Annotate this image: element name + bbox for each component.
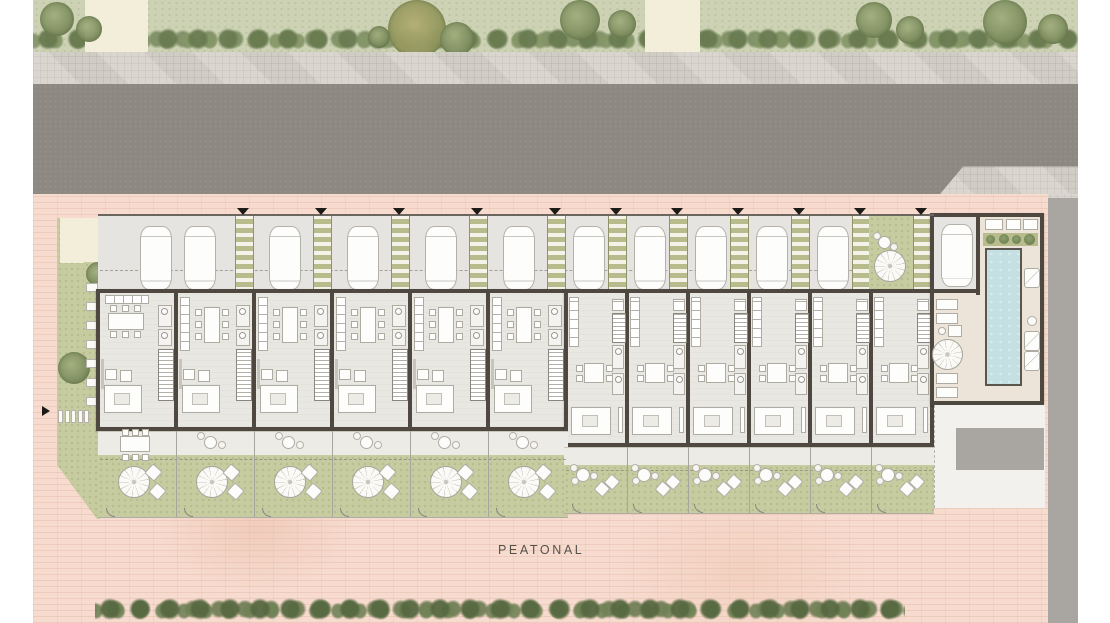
stairs — [470, 349, 486, 401]
chair-icon — [637, 375, 644, 382]
entry-walkway — [235, 216, 254, 291]
stairs — [734, 313, 748, 343]
closet — [673, 299, 685, 311]
car-icon — [425, 226, 457, 290]
chair-icon — [273, 333, 280, 340]
garden-dash-line-a — [100, 459, 566, 460]
entry-marker-icon — [732, 208, 744, 215]
tree-icon — [856, 2, 892, 38]
kitchen — [180, 297, 190, 351]
skylight — [1023, 219, 1038, 230]
chair-icon — [452, 441, 460, 449]
bathroom — [158, 305, 172, 327]
sink-icon — [239, 308, 246, 315]
entry-marker-icon — [610, 208, 622, 215]
townhouse-unit-a-5 — [412, 293, 486, 427]
sofa — [632, 407, 672, 435]
townhouse-unit-a-6 — [490, 293, 564, 427]
stepping-stone-icon — [58, 410, 63, 423]
chair-icon — [195, 333, 202, 340]
chair-icon — [570, 464, 578, 472]
chair-icon — [876, 477, 884, 485]
chair-icon — [534, 309, 541, 316]
chair-icon — [693, 477, 701, 485]
chair-icon — [507, 321, 514, 328]
side-table-icon — [938, 327, 946, 335]
chair-icon — [509, 432, 517, 440]
sofa-cushion — [426, 393, 442, 406]
chair-icon — [606, 365, 613, 372]
townhouse-unit-a-3 — [256, 293, 330, 427]
bistro-table-icon — [282, 436, 295, 449]
chair-icon — [753, 464, 761, 472]
sofa — [104, 385, 142, 413]
lounge-chair-icon — [948, 325, 962, 337]
toilet-icon — [798, 376, 805, 383]
stairs — [314, 349, 330, 401]
chair-icon — [374, 441, 382, 449]
car-icon — [184, 226, 216, 290]
toilet-icon — [317, 332, 324, 339]
car-icon — [817, 226, 849, 290]
sink-icon — [615, 348, 622, 355]
kitchen — [569, 297, 579, 347]
entry-walkway — [547, 216, 566, 291]
townhouse-unit-a-2 — [178, 293, 252, 427]
chair-icon — [698, 375, 705, 382]
toilet-icon — [551, 332, 558, 339]
car-icon — [634, 226, 666, 290]
toilet-icon — [239, 332, 246, 339]
chair-icon — [456, 333, 463, 340]
garden-fence — [410, 431, 411, 517]
bathroom — [158, 329, 172, 346]
tree-icon — [896, 16, 924, 44]
closet — [795, 299, 807, 311]
armchair-icon — [339, 369, 351, 380]
chair-icon — [637, 365, 644, 372]
sofa-cushion — [765, 415, 781, 428]
chair-icon — [222, 309, 229, 316]
sink-icon — [920, 348, 927, 355]
chair-icon — [789, 365, 796, 372]
bench-icon — [740, 407, 745, 433]
sun-lounger-icon — [1024, 268, 1040, 288]
kitchen — [258, 297, 268, 351]
entry-walkway — [791, 216, 810, 291]
closet — [856, 299, 868, 311]
garden-fence — [332, 431, 333, 517]
bathroom — [548, 329, 562, 346]
bathroom — [236, 329, 250, 346]
chair-icon — [273, 309, 280, 316]
dining-table — [438, 307, 454, 343]
chair-icon — [222, 321, 229, 328]
townhouse-unit-a-4 — [334, 293, 408, 427]
road — [33, 84, 1078, 194]
sink-icon — [317, 308, 324, 315]
townhouse-unit-b-2 — [629, 293, 686, 443]
shrub-icon — [1012, 235, 1021, 244]
dining-table — [828, 363, 848, 383]
chair-icon — [571, 477, 579, 485]
shrub-icon — [1024, 234, 1035, 245]
armchair-icon — [261, 369, 273, 380]
chair-icon — [911, 375, 918, 382]
chair-icon — [142, 454, 149, 461]
chair-icon — [712, 472, 720, 480]
site-plan: PEATONAL — [0, 0, 1110, 623]
sofa — [693, 407, 733, 435]
chair-icon — [353, 432, 361, 440]
coffee-table-icon — [276, 370, 288, 382]
chair-icon — [195, 309, 202, 316]
stairs — [856, 313, 870, 343]
garden-fence — [688, 447, 689, 513]
chair-icon — [850, 375, 857, 382]
south-hedge — [95, 594, 905, 623]
chair-icon — [667, 375, 674, 382]
chair-icon — [222, 333, 229, 340]
car-icon — [941, 224, 973, 287]
chair-icon — [850, 365, 857, 372]
bench-icon — [936, 313, 958, 324]
chair-icon — [273, 321, 280, 328]
toilet-icon — [473, 332, 480, 339]
stepping-stone-icon — [84, 410, 89, 423]
chair-icon — [134, 305, 141, 312]
chair-icon — [576, 375, 583, 382]
dining-table — [889, 363, 909, 383]
page-margin-left — [0, 0, 33, 623]
sofa-cushion — [582, 415, 598, 428]
skylight — [985, 219, 1003, 230]
entry-marker-icon — [915, 208, 927, 215]
chair-icon — [534, 321, 541, 328]
chair-icon — [122, 454, 129, 461]
garden-fence — [254, 431, 255, 517]
dining-table — [282, 307, 298, 343]
chair-icon — [632, 477, 640, 485]
bathroom — [917, 345, 929, 369]
chair-icon — [820, 375, 827, 382]
sink-icon — [161, 308, 168, 315]
chair-icon — [110, 305, 117, 312]
car-icon — [573, 226, 605, 290]
bathroom — [612, 345, 624, 369]
bench-icon — [618, 407, 623, 433]
terrace-strip-a — [98, 431, 568, 456]
kitchen — [691, 297, 701, 347]
sofa — [182, 385, 220, 413]
garden-fence — [627, 447, 628, 513]
armchair-icon — [417, 369, 429, 380]
bench-icon — [923, 407, 928, 433]
pool-parking-wall — [976, 217, 980, 295]
chair-icon — [698, 365, 705, 372]
sink-icon — [737, 348, 744, 355]
entry-marker-icon — [549, 208, 561, 215]
chair-icon — [667, 365, 674, 372]
bathroom — [392, 305, 406, 327]
toilet-icon — [161, 332, 168, 339]
bench-icon — [801, 407, 806, 433]
chair-icon — [378, 321, 385, 328]
chair-icon — [590, 472, 598, 480]
pool-parking-wall — [934, 289, 980, 293]
bathroom — [856, 345, 868, 369]
chair-icon — [881, 365, 888, 372]
toilet-icon — [615, 376, 622, 383]
entry-walkway — [391, 216, 410, 291]
sofa — [338, 385, 376, 413]
bistro-table-icon — [438, 436, 451, 449]
chair-icon — [530, 441, 538, 449]
bathroom — [795, 373, 807, 395]
tree-icon — [1038, 14, 1068, 44]
coffee-table-icon — [432, 370, 444, 382]
tree-icon — [608, 10, 636, 38]
entry-marker-icon — [854, 208, 866, 215]
upper-sidewalk — [33, 52, 1078, 85]
sofa-cushion — [348, 393, 364, 406]
chair-icon — [507, 309, 514, 316]
closet — [612, 299, 624, 311]
chair-icon — [296, 441, 304, 449]
bench-icon — [936, 299, 958, 310]
sofa — [571, 407, 611, 435]
tree-icon — [983, 0, 1027, 44]
entry-walkway — [730, 216, 749, 291]
dining-table — [204, 307, 220, 343]
tree-icon — [388, 0, 446, 58]
dining-table — [584, 363, 604, 383]
dining-table — [706, 363, 726, 383]
skylight — [1006, 219, 1021, 230]
chair-icon — [275, 432, 283, 440]
entry-walkway — [608, 216, 627, 291]
bathroom — [392, 329, 406, 346]
toilet-icon — [737, 376, 744, 383]
stairs — [392, 349, 408, 401]
sun-lounger-icon — [1024, 331, 1040, 351]
garden-fence — [871, 447, 872, 513]
stairs — [917, 313, 931, 343]
townhouse-block-b — [564, 289, 934, 447]
toilet-icon — [395, 332, 402, 339]
garden-fence — [810, 447, 811, 513]
stairs — [795, 313, 809, 343]
stairs — [612, 313, 626, 343]
townhouse-block-a — [96, 289, 568, 431]
tree-icon — [440, 22, 474, 56]
chair-icon — [534, 333, 541, 340]
toilet-icon — [676, 376, 683, 383]
dining-table — [767, 363, 787, 383]
shrub-icon — [986, 235, 995, 244]
townhouse-unit-a-1 — [100, 293, 174, 427]
bathroom — [673, 345, 685, 369]
chair-icon — [429, 309, 436, 316]
bathroom — [236, 305, 250, 327]
kitchen — [105, 295, 149, 304]
page-margin-right — [1078, 0, 1110, 623]
entry-marker-icon — [237, 208, 249, 215]
sofa-cushion — [887, 415, 903, 428]
stairs — [236, 349, 252, 401]
bathroom — [612, 373, 624, 395]
entry-marker-icon — [471, 208, 483, 215]
property-line — [98, 214, 934, 216]
chair-icon — [606, 375, 613, 382]
kitchen — [813, 297, 823, 347]
armchair-icon — [183, 369, 195, 380]
west-garden-court — [60, 218, 98, 263]
sink-icon — [473, 308, 480, 315]
entry-walkway — [469, 216, 488, 291]
courtyard-chair-icon — [873, 232, 881, 240]
entry-marker-icon — [671, 208, 683, 215]
service-pad — [956, 428, 1044, 470]
car-icon — [140, 226, 172, 290]
bathroom — [917, 373, 929, 395]
entry-arrow-icon — [42, 406, 50, 416]
sink-icon — [676, 348, 683, 355]
chair-icon — [300, 333, 307, 340]
chair-icon — [429, 321, 436, 328]
sofa — [754, 407, 794, 435]
coffee-table-icon — [354, 370, 366, 382]
chair-icon — [895, 472, 903, 480]
garden-fence — [488, 431, 489, 517]
chair-icon — [456, 321, 463, 328]
pool-parasol-icon — [932, 339, 963, 370]
chair-icon — [507, 333, 514, 340]
sofa — [260, 385, 298, 413]
chair-icon — [692, 464, 700, 472]
chair-icon — [820, 365, 827, 372]
outdoor-dining-table — [120, 436, 150, 452]
dining-table — [360, 307, 376, 343]
kitchen — [336, 297, 346, 351]
chair-icon — [351, 321, 358, 328]
sun-lounger-icon — [1024, 351, 1040, 371]
townhouse-unit-b-3 — [690, 293, 747, 443]
sofa-cushion — [643, 415, 659, 428]
coffee-table-icon — [510, 370, 522, 382]
bathroom — [470, 305, 484, 327]
bathroom — [734, 345, 746, 369]
chair-icon — [456, 309, 463, 316]
chair-icon — [122, 331, 129, 338]
chair-icon — [759, 365, 766, 372]
bathroom — [856, 373, 868, 395]
chair-icon — [431, 432, 439, 440]
dining-table — [516, 307, 532, 343]
pool — [985, 248, 1022, 386]
dining-table — [645, 363, 665, 383]
bench-icon — [679, 407, 684, 433]
sink-icon — [551, 308, 558, 315]
park-path-east — [645, 0, 700, 54]
chair-icon — [576, 365, 583, 372]
entry-walkway — [313, 216, 332, 291]
stepping-stone-icon — [78, 410, 83, 423]
chair-icon — [197, 432, 205, 440]
bathroom — [314, 305, 328, 327]
kitchen — [752, 297, 762, 347]
sofa — [815, 407, 855, 435]
pool-court — [930, 213, 1044, 405]
car-icon — [756, 226, 788, 290]
chair-icon — [651, 472, 659, 480]
bathroom — [734, 373, 746, 395]
bench-icon — [936, 373, 958, 384]
toilet-icon — [859, 376, 866, 383]
closet — [734, 299, 746, 311]
chair-icon — [110, 331, 117, 338]
garden-fence — [749, 447, 750, 513]
sofa-cushion — [192, 393, 208, 406]
car-icon — [503, 226, 535, 290]
entry-marker-icon — [393, 208, 405, 215]
bathroom — [795, 345, 807, 369]
coffee-table-icon — [120, 370, 132, 382]
sofa — [416, 385, 454, 413]
entry-marker-icon — [793, 208, 805, 215]
tree-icon — [560, 0, 600, 40]
stairs — [548, 349, 564, 401]
chair-icon — [631, 464, 639, 472]
stairs — [673, 313, 687, 343]
chair-icon — [300, 321, 307, 328]
bistro-table-icon — [360, 436, 373, 449]
chair-icon — [378, 333, 385, 340]
street-label: PEATONAL — [498, 543, 584, 557]
stepping-stone-icon — [71, 410, 76, 423]
chair-icon — [911, 365, 918, 372]
townhouse-unit-b-1 — [568, 293, 625, 443]
car-icon — [347, 226, 379, 290]
car-icon — [269, 226, 301, 290]
chair-icon — [728, 375, 735, 382]
sofa — [876, 407, 916, 435]
chair-icon — [351, 309, 358, 316]
townhouse-unit-b-6 — [873, 293, 930, 443]
garden-fence — [176, 431, 177, 517]
chair-icon — [132, 454, 139, 461]
chair-icon — [789, 375, 796, 382]
sofa-cushion — [826, 415, 842, 428]
shrub-icon — [999, 234, 1009, 244]
car-icon — [695, 226, 727, 290]
chair-icon — [300, 309, 307, 316]
sink-icon — [798, 348, 805, 355]
chair-icon — [378, 309, 385, 316]
chair-icon — [429, 333, 436, 340]
chair-icon — [754, 477, 762, 485]
chair-icon — [814, 464, 822, 472]
chair-icon — [875, 464, 883, 472]
chair-icon — [773, 472, 781, 480]
chair-icon — [759, 375, 766, 382]
chair-icon — [834, 472, 842, 480]
chair-icon — [122, 429, 129, 436]
chair-icon — [195, 321, 202, 328]
chair-icon — [142, 429, 149, 436]
chair-icon — [351, 333, 358, 340]
entry-marker-icon — [315, 208, 327, 215]
